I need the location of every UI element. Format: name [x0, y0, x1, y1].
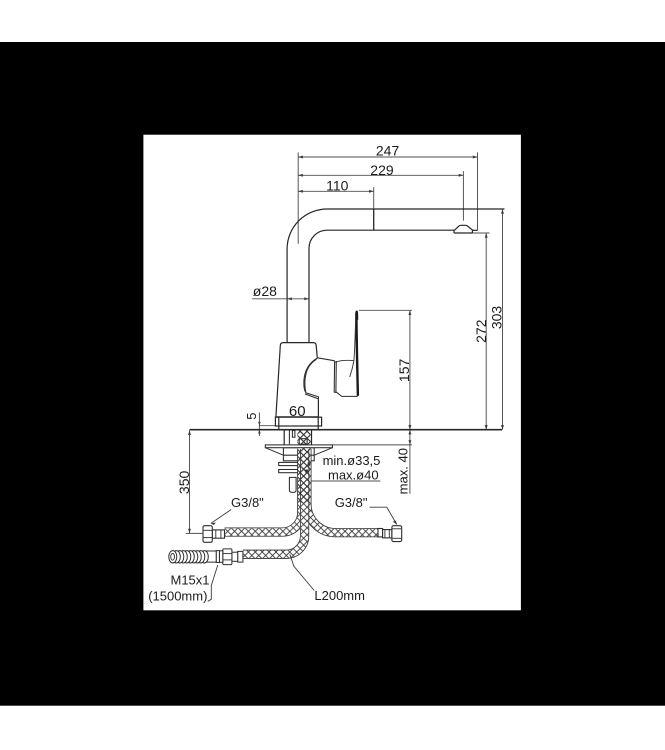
- svg-text:max.ø40: max.ø40: [328, 467, 379, 482]
- svg-text:110: 110: [326, 178, 349, 194]
- svg-text:229: 229: [370, 162, 394, 178]
- svg-text:60: 60: [289, 403, 306, 420]
- svg-text:ø28: ø28: [253, 283, 277, 299]
- svg-text:min.ø33,5: min.ø33,5: [323, 453, 381, 468]
- svg-text:G3/8": G3/8": [231, 495, 264, 510]
- svg-text:157: 157: [396, 359, 412, 383]
- svg-text:5: 5: [244, 413, 259, 420]
- svg-text:350: 350: [176, 471, 192, 495]
- svg-text:303: 303: [489, 306, 505, 330]
- svg-text:(1500mm): (1500mm): [148, 588, 207, 603]
- svg-text:247: 247: [376, 143, 400, 159]
- svg-text:L200mm: L200mm: [314, 588, 365, 603]
- svg-text:G3/8": G3/8": [335, 495, 368, 510]
- svg-text:272: 272: [473, 319, 489, 343]
- svg-text:max. 40: max. 40: [396, 448, 411, 494]
- svg-text:M15x1: M15x1: [171, 573, 210, 588]
